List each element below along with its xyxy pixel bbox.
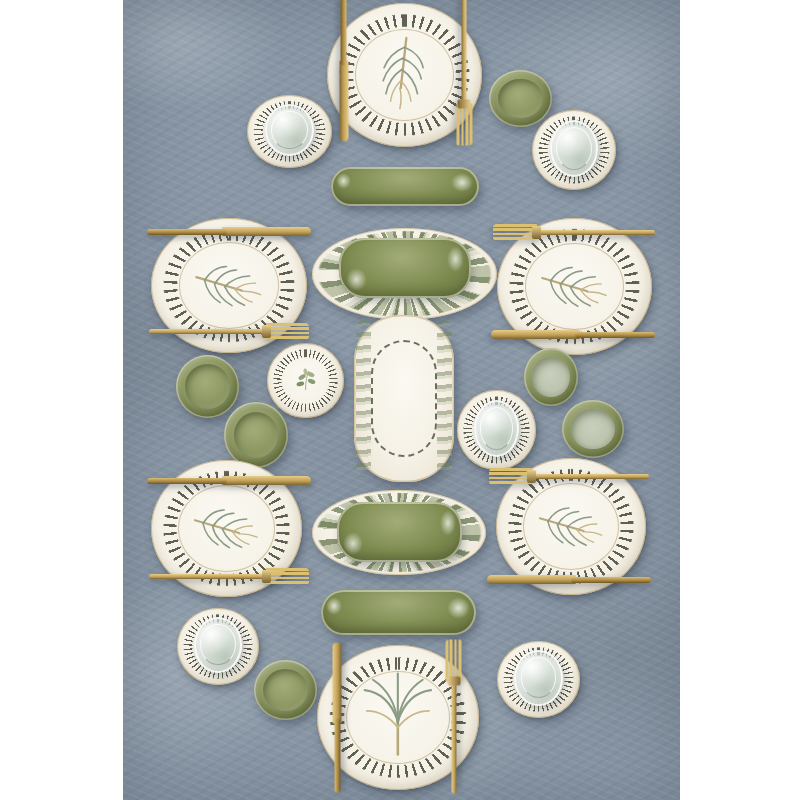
olive-branch-motif xyxy=(284,358,327,403)
bowl-well xyxy=(532,357,570,398)
bowl-well xyxy=(234,412,279,458)
fork-bottom-left-bottom xyxy=(149,568,309,585)
bowl-well xyxy=(185,364,229,408)
glass-plate-bottom-left xyxy=(177,608,259,685)
water-glass xyxy=(474,400,520,458)
bowl-well xyxy=(263,669,307,711)
gold-inner-line xyxy=(355,29,454,121)
fir-sprig-motif xyxy=(167,476,287,578)
rope-border-pattern xyxy=(371,340,437,457)
bowl-well xyxy=(498,79,542,119)
knife-handle xyxy=(147,229,227,235)
glass-plate-top-right xyxy=(532,110,616,190)
water-glass xyxy=(514,650,562,705)
knife-top xyxy=(340,0,349,142)
knife-blade xyxy=(333,643,342,724)
knife-bottom-left-top xyxy=(147,476,311,485)
rope-rim-pattern xyxy=(180,611,255,682)
fork-left-bottom xyxy=(149,323,309,340)
knife-blade xyxy=(487,575,576,584)
knife-handle xyxy=(334,719,340,793)
green-tray-top xyxy=(331,167,479,206)
green-bowl-right-lower xyxy=(562,400,624,458)
gold-inner-line xyxy=(346,671,450,764)
knife-handle xyxy=(575,332,655,338)
rope-rim-pattern xyxy=(250,98,328,165)
knife-blade xyxy=(222,227,311,236)
fork-bottom xyxy=(446,640,463,794)
palm-frond-motif xyxy=(346,657,450,773)
green-bowl-top-right xyxy=(489,70,552,127)
water-glass xyxy=(194,617,242,672)
fork-top xyxy=(456,0,473,146)
fork-tines xyxy=(489,468,532,485)
fork-right-top xyxy=(493,224,655,241)
fork-shaft xyxy=(532,474,649,479)
fir-sprig-motif xyxy=(514,233,634,337)
bowl-well xyxy=(571,409,614,450)
fork-tines xyxy=(456,104,473,146)
water-glass xyxy=(265,104,314,157)
fork-shaft xyxy=(462,0,467,104)
leaf-edge-decoration xyxy=(356,320,371,477)
knife-bottom xyxy=(333,643,342,793)
gold-inner-line xyxy=(178,485,275,573)
green-bowl-right-upper xyxy=(524,348,578,406)
fork-shaft xyxy=(149,574,266,579)
knife-blade xyxy=(491,330,580,339)
leaf-edge-decoration xyxy=(437,320,452,477)
green-bowl-left-lower xyxy=(224,402,288,468)
fork-shaft xyxy=(452,681,457,793)
knife-left-top xyxy=(147,227,311,236)
olive-branch-plate xyxy=(267,343,344,418)
fir-sprig-motif xyxy=(170,232,289,336)
fork-bottom-right-top xyxy=(489,468,649,485)
fork-tines xyxy=(446,640,463,682)
gold-inner-line xyxy=(523,483,619,571)
rope-rim-pattern xyxy=(270,346,341,415)
green-bowl-left-upper xyxy=(176,355,239,418)
green-dish-top xyxy=(339,238,471,298)
green-bowl-bottom-left xyxy=(254,660,317,720)
rope-oblong-tray xyxy=(354,315,454,482)
page-background xyxy=(0,0,800,800)
knife-right-bottom xyxy=(491,330,655,339)
fork-shaft xyxy=(149,329,266,334)
rope-rim-pattern xyxy=(460,393,533,467)
rope-rim-pattern xyxy=(334,9,475,140)
gold-inner-line xyxy=(525,243,624,331)
glass-plate-top-left xyxy=(247,95,332,168)
knife-handle xyxy=(147,478,227,484)
water-glass xyxy=(550,120,599,178)
glass-plate-middle-right xyxy=(457,390,536,470)
fork-tines xyxy=(266,568,309,585)
glass-plate-bottom-right xyxy=(497,641,580,718)
knife-handle xyxy=(341,0,347,65)
fir-sprig-motif xyxy=(511,474,631,575)
fork-tines xyxy=(493,224,537,241)
green-tray-bottom xyxy=(321,590,476,635)
green-dish-bottom xyxy=(337,502,462,562)
knife-blade xyxy=(340,61,349,142)
knife-handle xyxy=(571,577,651,583)
gold-inner-line xyxy=(179,242,279,328)
rope-rim-pattern xyxy=(500,644,576,715)
knife-blade xyxy=(222,476,311,485)
knife-bottom-right-bottom xyxy=(487,575,651,584)
tableware-photo xyxy=(123,0,680,800)
fork-tines xyxy=(266,323,309,340)
rope-rim-pattern xyxy=(535,113,612,187)
fork-shaft xyxy=(537,230,655,235)
fir-sprig-motif xyxy=(358,20,451,127)
